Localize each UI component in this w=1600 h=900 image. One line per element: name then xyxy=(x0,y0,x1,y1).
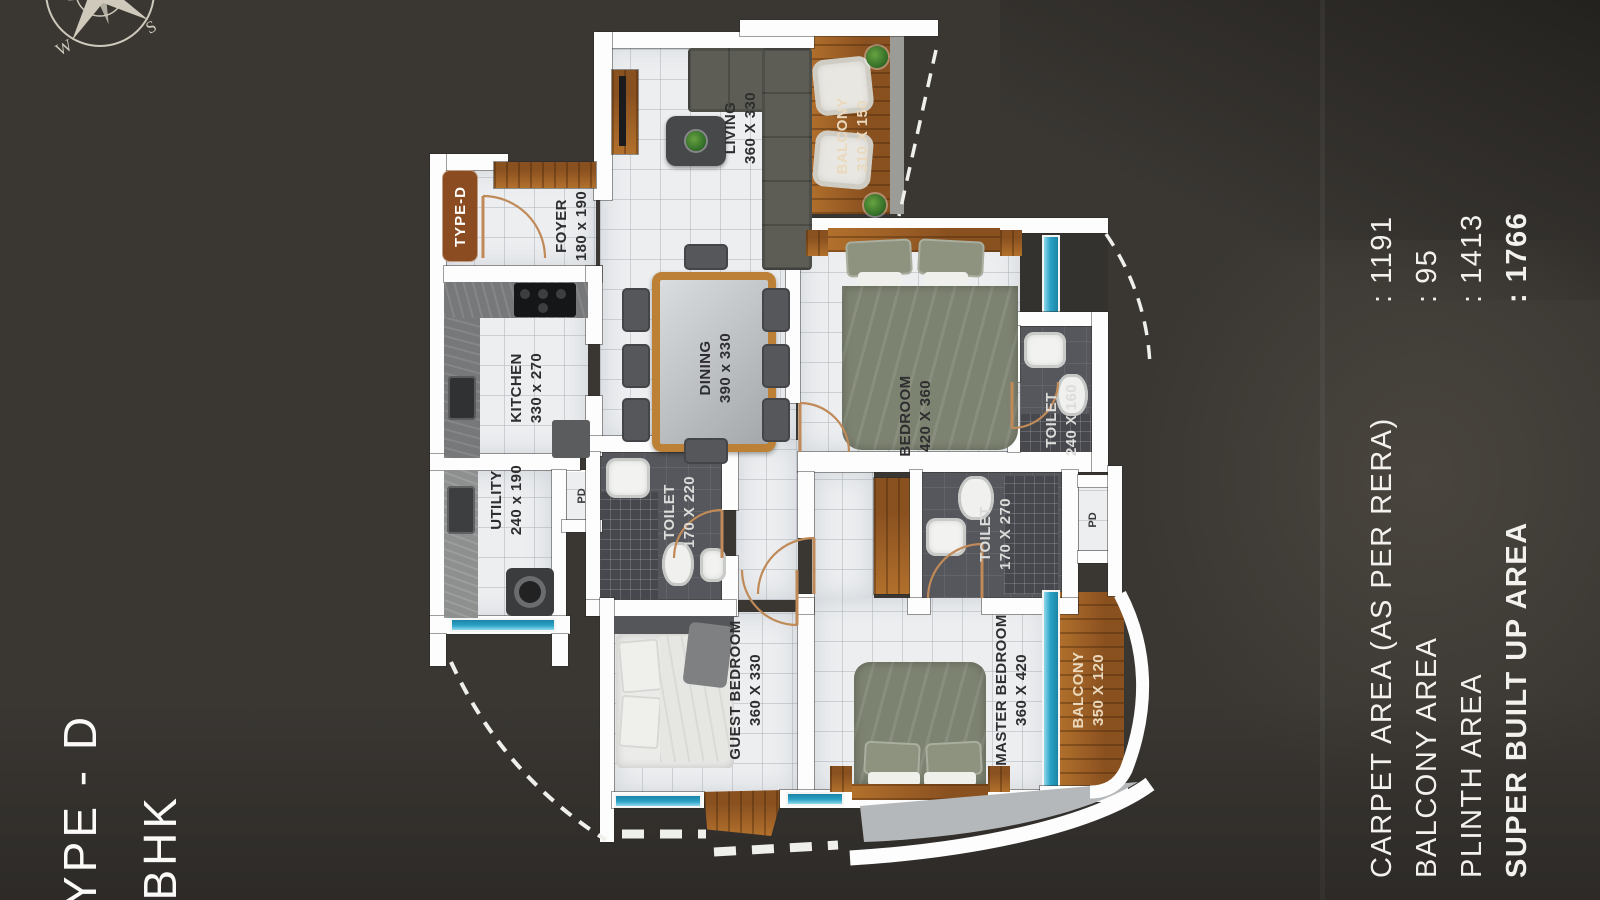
dining-chair xyxy=(762,288,790,332)
dining-chair xyxy=(762,398,790,442)
dining-chair xyxy=(622,398,650,442)
stat-value: : 1191 xyxy=(1366,216,1399,303)
room-name: MASTER BEDROOM xyxy=(992,614,1012,765)
fridge xyxy=(552,420,590,458)
corridor-floor xyxy=(736,440,798,600)
master-side-table xyxy=(830,766,852,792)
room-dims: 240 x 190 xyxy=(507,465,527,535)
tv-screen xyxy=(619,76,626,146)
compass-west-letter: W xyxy=(52,35,76,60)
toilet3-washbasin xyxy=(926,518,966,556)
wall xyxy=(1040,786,1128,802)
unit-type-title: TYPE - D xyxy=(53,713,107,900)
stat-value: : 1766 xyxy=(1501,212,1534,303)
bedroom-window xyxy=(1044,237,1058,313)
bottom-wood-panel xyxy=(704,790,784,836)
stove-burner xyxy=(538,289,548,299)
bedroom-label: BEDROOM 420 X 360 xyxy=(896,375,937,456)
wall xyxy=(908,598,930,614)
master-side-table xyxy=(988,766,1010,792)
entrance-door-slab xyxy=(494,162,596,188)
utility-window xyxy=(452,620,554,630)
room-dims: 170 X 270 xyxy=(996,498,1016,570)
room-dims: 180 x 190 xyxy=(572,191,592,261)
room-name: TOILET xyxy=(976,506,996,561)
stat-row-carpet-area: CARPET AREA (AS PER RERA) : 1191 xyxy=(1366,178,1399,878)
wall xyxy=(1092,312,1108,472)
room-name: FOYER xyxy=(552,199,572,253)
room-name: TOILET xyxy=(1042,392,1062,447)
utility-label: UTILITY 240 x 190 xyxy=(487,465,528,535)
floor-plan-poster: W S LIVING 360 X 330 BALCONY 310 X 150 F… xyxy=(0,0,1600,900)
toilet1-washbasin xyxy=(1024,332,1066,368)
pd-duct-1-label: PD xyxy=(576,488,588,503)
wall xyxy=(552,634,568,666)
room-name: DINING xyxy=(696,341,716,396)
room-dims: 390 x 330 xyxy=(716,333,736,403)
dining-chair xyxy=(622,288,650,332)
utility-sink xyxy=(447,486,475,534)
stat-label: CARPET AREA (AS PER RERA) xyxy=(1366,303,1399,878)
wall xyxy=(1078,551,1112,563)
living-label: LIVING 360 X 330 xyxy=(721,92,762,164)
stat-row-plinth-area: PLINTH AREA : 1413 xyxy=(1456,178,1489,878)
bedroom-right-void xyxy=(1020,233,1108,313)
dining-label: DINING 390 x 330 xyxy=(696,333,737,403)
toilet2-label: TOILET 170 X 220 xyxy=(660,476,701,548)
room-name: KITCHEN xyxy=(507,353,527,422)
wall xyxy=(444,266,602,282)
room-dims: 350 X 120 xyxy=(1089,654,1109,726)
master-headboard xyxy=(852,784,988,800)
wall xyxy=(740,20,938,36)
wall xyxy=(430,634,446,666)
washing-machine-drum xyxy=(514,576,546,608)
balcony-top-label: BALCONY 310 X 150 xyxy=(833,98,874,175)
toilet2-wc xyxy=(662,542,694,586)
room-dims: 360 X 330 xyxy=(741,92,761,164)
stat-value: : 1413 xyxy=(1456,213,1489,303)
dining-chair xyxy=(762,344,790,388)
room-name: TOILET xyxy=(660,484,680,539)
toilet2-washbasin-2 xyxy=(700,548,726,582)
toilet2-washbasin xyxy=(606,458,650,498)
pd-duct-2-label: PD xyxy=(1087,512,1099,527)
master-balcony-window xyxy=(1044,592,1058,788)
stove-burner xyxy=(538,303,548,313)
room-name: BEDROOM xyxy=(896,375,916,456)
area-statistics: CARPET AREA (AS PER RERA) : 1191 BALCONY… xyxy=(1366,178,1534,878)
room-name: UTILITY xyxy=(487,470,507,529)
wall xyxy=(1078,475,1112,487)
balcony-right-label: BALCONY 350 X 120 xyxy=(1069,652,1110,729)
stove-burner xyxy=(520,289,530,299)
balcony-plant-2 xyxy=(864,194,886,216)
compass-icon: W S xyxy=(24,0,177,68)
room-dims: 240 X 160 xyxy=(1062,384,1082,456)
balcony-top-ledge xyxy=(890,36,904,214)
stove-burner xyxy=(556,289,566,299)
wall xyxy=(1108,466,1122,596)
stat-label: BALCONY AREA xyxy=(1411,303,1444,878)
room-name: GUEST BEDROOM xyxy=(726,620,746,759)
stat-row-super-built-up-area: SUPER BUILT UP AREA : 1766 xyxy=(1501,178,1534,878)
room-dims: 170 X 220 xyxy=(680,476,700,548)
dressing-floor xyxy=(812,470,874,600)
balcony-plant-1 xyxy=(866,46,888,68)
dining-chair xyxy=(684,244,728,270)
wall xyxy=(982,598,1078,614)
unit-bhk-title: 3BHK xyxy=(133,794,187,900)
wall xyxy=(797,598,814,614)
wall xyxy=(1062,470,1078,612)
wall xyxy=(586,452,600,616)
room-dims: 420 X 360 xyxy=(916,380,936,452)
room-dims: 360 X 330 xyxy=(746,654,766,726)
stat-row-balcony-area: BALCONY AREA : 95 xyxy=(1411,178,1444,878)
master-bedroom-label: MASTER BEDROOM 360 X 420 xyxy=(992,614,1033,765)
bedroom-side-table xyxy=(1000,230,1022,256)
wardrobe xyxy=(874,478,910,594)
guest-pillow xyxy=(618,638,662,693)
dining-chair xyxy=(622,344,650,388)
guest-pillow xyxy=(618,695,662,750)
room-dims: 330 x 270 xyxy=(527,353,547,423)
foyer-label: FOYER 180 x 190 xyxy=(552,191,593,261)
sofa-vertical xyxy=(762,48,812,270)
room-name: BALCONY xyxy=(833,98,853,175)
plant-coffee-table xyxy=(686,131,706,151)
master-window xyxy=(788,794,842,804)
toilet2-shower-area xyxy=(600,492,658,600)
wall xyxy=(798,594,814,806)
guest-bedroom-label: GUEST BEDROOM 360 X 330 xyxy=(726,620,767,759)
dining-chair xyxy=(684,438,728,464)
stat-value: : 95 xyxy=(1411,249,1444,303)
wall xyxy=(798,472,814,538)
stat-label: PLINTH AREA xyxy=(1456,303,1489,878)
kitchen-sink xyxy=(448,376,476,420)
bedroom-side-table xyxy=(806,230,828,256)
room-dims: 310 X 150 xyxy=(853,100,873,172)
kitchen-label: KITCHEN 330 x 270 xyxy=(507,353,548,423)
toilet1-label: TOILET 240 X 160 xyxy=(1042,384,1083,456)
wall xyxy=(586,266,602,344)
compass-south-letter: S xyxy=(142,16,159,37)
type-badge-text: TYPE-D xyxy=(452,185,469,246)
wall xyxy=(594,32,612,200)
guest-window xyxy=(616,796,700,806)
wall xyxy=(910,470,922,600)
toilet3-label: TOILET 170 X 270 xyxy=(976,498,1017,570)
wall xyxy=(552,470,566,634)
room-name: BALCONY xyxy=(1069,652,1089,729)
type-badge: TYPE-D xyxy=(442,170,478,262)
room-name: LIVING xyxy=(721,102,741,154)
room-dims: 360 X 420 xyxy=(1012,654,1032,726)
stat-label: SUPER BUILT UP AREA xyxy=(1501,303,1534,878)
